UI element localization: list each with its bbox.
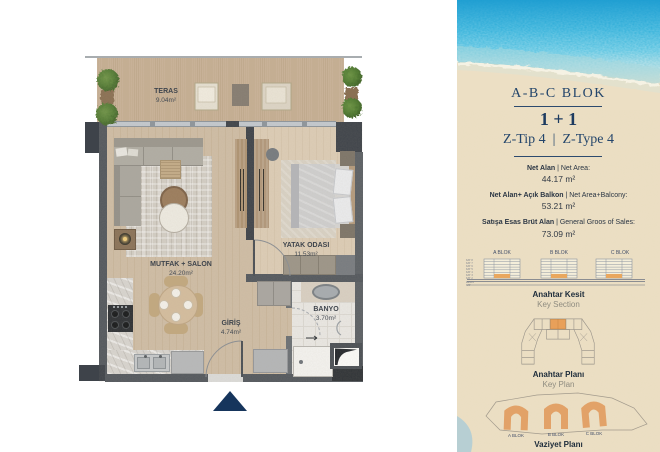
- svg-text:KAT: KAT: [466, 284, 471, 287]
- svg-text:A BLOK: A BLOK: [508, 433, 524, 438]
- svg-text:KAT 2: KAT 2: [466, 277, 473, 280]
- svg-text:B BLOK: B BLOK: [548, 432, 564, 437]
- svg-text:C BLOK: C BLOK: [586, 431, 603, 436]
